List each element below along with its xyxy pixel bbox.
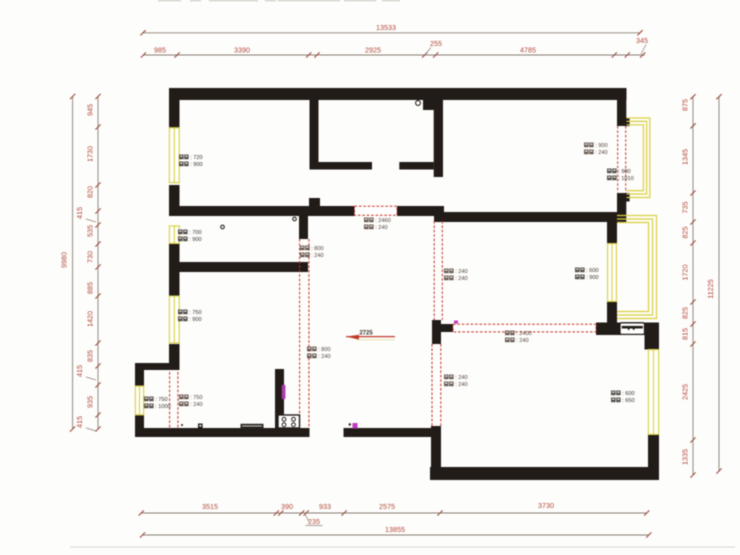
svg-text:: 240: : 240: [595, 150, 607, 156]
svg-text:255: 255: [430, 39, 442, 48]
svg-text:: 2460: : 2460: [375, 218, 391, 224]
svg-text:: 900: : 900: [189, 237, 201, 243]
svg-text:3515: 3515: [202, 502, 218, 511]
svg-text:2575: 2575: [379, 502, 395, 511]
svg-text:3730: 3730: [538, 501, 554, 510]
svg-text:735: 735: [681, 202, 690, 214]
svg-text:815: 815: [681, 328, 690, 340]
svg-text:1335: 1335: [681, 449, 690, 465]
svg-text:13533: 13533: [376, 23, 396, 32]
svg-text:: 900: : 900: [595, 143, 607, 149]
svg-text:: 240: : 240: [190, 402, 202, 408]
svg-text:13855: 13855: [385, 525, 405, 534]
svg-text:1420: 1420: [86, 311, 95, 327]
svg-text:: 1000: : 1000: [155, 404, 171, 410]
svg-text:415: 415: [75, 207, 84, 219]
svg-text:935: 935: [86, 396, 95, 408]
svg-text:345: 345: [636, 36, 648, 45]
svg-text:2725: 2725: [359, 331, 373, 337]
svg-text:: 240: : 240: [455, 382, 467, 388]
svg-text:415: 415: [75, 416, 84, 428]
svg-text:1730: 1730: [86, 146, 95, 162]
svg-text:875: 875: [681, 99, 690, 111]
svg-text:825: 825: [681, 307, 690, 319]
svg-text:: 240: : 240: [455, 375, 467, 381]
svg-text:: 750: : 750: [155, 397, 167, 403]
svg-text:985: 985: [154, 45, 166, 54]
svg-text:: 900: : 900: [586, 275, 598, 281]
svg-text:: 800: : 800: [318, 347, 330, 353]
svg-text:: 240: : 240: [455, 276, 467, 282]
svg-text:235: 235: [308, 517, 320, 526]
svg-text:825: 825: [681, 227, 690, 239]
svg-text:535: 535: [86, 225, 95, 237]
svg-text:4785: 4785: [520, 45, 536, 54]
svg-text:415: 415: [75, 365, 84, 377]
svg-text:: 2400: : 2400: [516, 331, 532, 337]
svg-text:: 1010: : 1010: [618, 176, 634, 182]
svg-text:933: 933: [319, 502, 331, 511]
svg-text:390: 390: [281, 502, 293, 511]
svg-text:: 720: : 720: [190, 155, 202, 161]
svg-text:: 240: : 240: [318, 354, 330, 360]
svg-text:: 600: : 600: [586, 268, 598, 274]
svg-text:1345: 1345: [681, 149, 690, 165]
svg-text:: 750: : 750: [189, 310, 201, 316]
svg-text:11225: 11225: [706, 279, 715, 298]
svg-text:2425: 2425: [681, 384, 690, 400]
svg-text:: 240: : 240: [375, 225, 387, 231]
svg-text:1720: 1720: [681, 265, 690, 281]
svg-text:945: 945: [86, 104, 95, 116]
svg-text:3390: 3390: [234, 45, 250, 54]
svg-text:: 650: : 650: [622, 398, 634, 404]
svg-text:: 240: : 240: [455, 269, 467, 275]
svg-text:835: 835: [86, 350, 95, 362]
svg-text:820: 820: [86, 186, 95, 198]
svg-text:730: 730: [86, 251, 95, 263]
svg-text:: 240: : 240: [311, 253, 323, 259]
svg-text:: 750: : 750: [190, 395, 202, 401]
svg-text:: 600: : 600: [622, 391, 634, 397]
svg-text:885: 885: [86, 282, 95, 294]
svg-text:: 900: : 900: [189, 317, 201, 323]
svg-text:: 900: : 900: [190, 162, 202, 168]
svg-text:9980: 9980: [60, 252, 69, 268]
svg-text:: 240: : 240: [516, 338, 528, 344]
svg-text:: 800: : 800: [311, 246, 323, 252]
svg-text:: 700: : 700: [189, 230, 201, 236]
svg-text:: 900: : 900: [618, 169, 630, 175]
svg-text:2925: 2925: [365, 45, 381, 54]
